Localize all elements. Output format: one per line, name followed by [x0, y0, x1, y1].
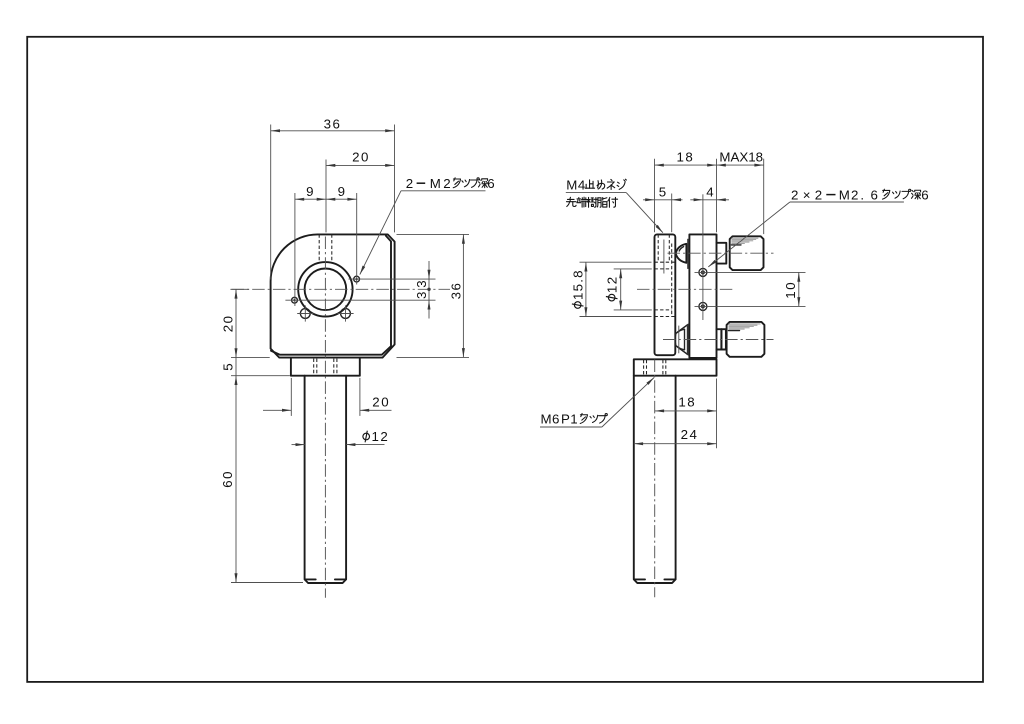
svg-text:9: 9: [338, 184, 345, 199]
svg-text:1: 1: [570, 412, 577, 427]
svg-text:12: 12: [372, 429, 390, 444]
svg-text:M: M: [541, 412, 552, 427]
svg-text:6: 6: [487, 176, 494, 191]
svg-text:2: 2: [851, 187, 858, 202]
svg-text:2: 2: [815, 187, 822, 202]
svg-text:.: .: [860, 187, 864, 202]
svg-text:15.8: 15.8: [571, 269, 586, 300]
svg-text:M: M: [566, 178, 577, 193]
svg-text:24: 24: [681, 427, 699, 442]
svg-text:18: 18: [678, 394, 696, 409]
svg-text:×: ×: [803, 187, 811, 202]
svg-text:3: 3: [414, 280, 429, 287]
svg-text:12: 12: [605, 275, 620, 293]
svg-text:20: 20: [372, 395, 390, 410]
svg-text:9: 9: [306, 184, 313, 199]
svg-text:2: 2: [406, 176, 413, 191]
svg-text:2: 2: [443, 176, 450, 191]
svg-text:2: 2: [791, 187, 798, 202]
svg-text:MAX18: MAX18: [719, 150, 763, 165]
svg-text:M: M: [430, 176, 441, 191]
svg-text:4: 4: [706, 184, 713, 199]
svg-text:60: 60: [220, 470, 235, 488]
svg-text:18: 18: [677, 150, 695, 165]
svg-text:36: 36: [449, 282, 464, 300]
svg-text:20: 20: [220, 315, 235, 333]
svg-text:20: 20: [352, 150, 370, 165]
svg-text:6: 6: [871, 187, 878, 202]
svg-text:4: 4: [578, 178, 585, 193]
svg-text:5: 5: [220, 363, 235, 370]
svg-text:36: 36: [324, 116, 342, 131]
svg-text:3: 3: [414, 292, 429, 299]
svg-text:5: 5: [659, 184, 666, 199]
svg-text:10: 10: [783, 281, 798, 299]
svg-text:P: P: [561, 412, 570, 427]
svg-text:6: 6: [921, 187, 928, 202]
svg-text:6: 6: [552, 412, 559, 427]
svg-text:M: M: [839, 187, 850, 202]
